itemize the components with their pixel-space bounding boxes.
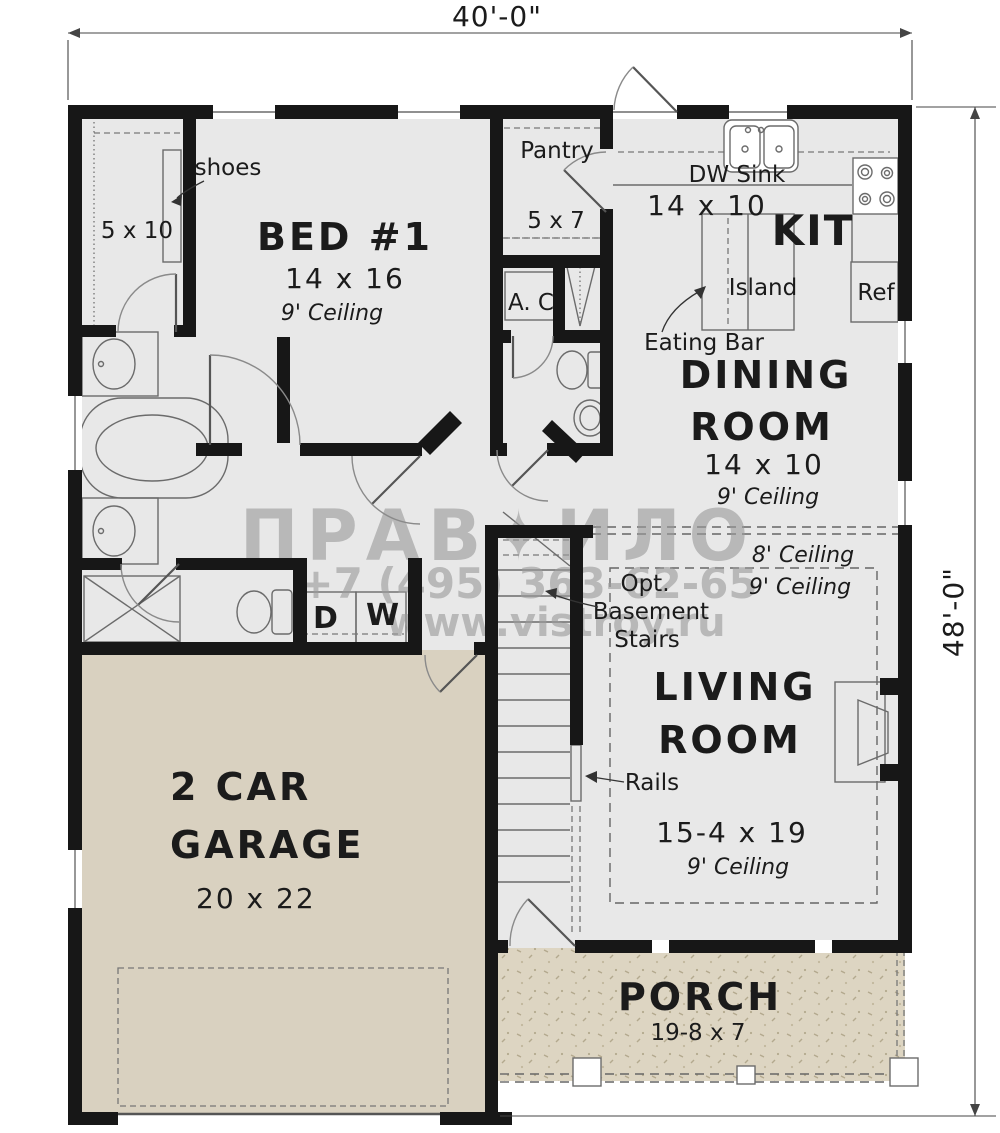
width-dimension: 40'-0" xyxy=(452,0,542,33)
floor-plan-page: ПРАВ✦ИЛО +7 (495) 363-62-65 www.vistroy.… xyxy=(0,0,1000,1133)
garage-size: 20 x 22 xyxy=(196,882,316,915)
stairs-basement: Basement xyxy=(593,599,709,625)
garage-name-2: GARAGE xyxy=(170,823,364,867)
stairs-opt: Opt. xyxy=(620,571,669,597)
dining-name-1: DINING xyxy=(680,353,853,397)
living-ceiling: 9' Ceiling xyxy=(687,855,789,880)
ceiling-9-label: 9' Ceiling xyxy=(749,575,851,600)
porch-size: 19-8 x 7 xyxy=(650,1020,745,1046)
living-size: 15-4 x 19 xyxy=(656,816,808,849)
living-name-1: LIVING xyxy=(654,665,817,709)
dining-ceiling: 9' Ceiling xyxy=(717,485,819,510)
closet-size: 5 x 10 xyxy=(101,218,173,244)
island-label: Island xyxy=(729,275,797,301)
shoes-label: shoes xyxy=(195,155,262,181)
pantry-size: 5 x 7 xyxy=(527,208,585,234)
porch-post xyxy=(737,1066,755,1084)
washer-label: W xyxy=(366,598,399,633)
porch-name: PORCH xyxy=(618,975,782,1019)
dw-sink-label: DW Sink xyxy=(689,162,786,188)
ac-label: A. C xyxy=(508,290,554,316)
pantry-name: Pantry xyxy=(520,138,594,164)
porch-post xyxy=(890,1058,918,1086)
ref-label: Ref xyxy=(857,280,895,306)
stairs-stairs: Stairs xyxy=(614,627,680,653)
kitchen-name: KIT xyxy=(772,206,855,255)
porch-post xyxy=(573,1058,601,1086)
ceiling-8-label: 8' Ceiling xyxy=(752,543,854,568)
rails-label: Rails xyxy=(625,770,679,796)
living-name-2: ROOM xyxy=(658,718,802,762)
height-dimension: 48'-0" xyxy=(937,567,970,657)
floor-plan-drawing: ПРАВ✦ИЛО +7 (495) 363-62-65 www.vistroy.… xyxy=(0,0,1000,1133)
dining-size: 14 x 10 xyxy=(704,448,824,481)
bed1-size: 14 x 16 xyxy=(285,262,405,295)
bed1-name: BED #1 xyxy=(257,215,433,259)
garage-name-1: 2 CAR xyxy=(170,765,311,809)
bed1-ceiling: 9' Ceiling xyxy=(281,301,383,326)
dryer-label: D xyxy=(313,601,338,636)
kitchen-size: 14 x 10 xyxy=(647,189,767,222)
dining-name-2: ROOM xyxy=(690,405,834,449)
